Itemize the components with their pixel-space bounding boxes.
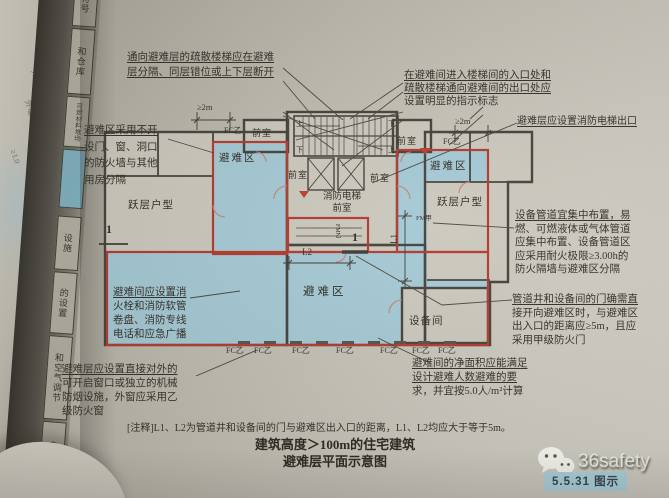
annotation-line: 卷盘、消防专线 — [113, 314, 187, 328]
annotation-smoke-control: 避难层应设置直接对外的 可开启窗口或独立的机械 防烟设施，外窗应采用乙 级防火窗 — [62, 363, 178, 419]
annotation-line: 用房分隔 — [84, 173, 158, 190]
window-marks — [238, 341, 456, 344]
label-refuge-area-center: 避难区 — [303, 283, 347, 299]
annotation-line: 采用甲级防火门 — [512, 334, 638, 348]
annotation-line: 电话和应急广播 — [113, 328, 187, 342]
annotation-line: 设门、窗、洞口 — [84, 140, 158, 157]
annotation-line: 级防火窗 — [62, 405, 178, 419]
annotation-line: 避难层应设置直接对外的 — [62, 363, 178, 377]
label-front-room: 前室 — [252, 126, 272, 139]
label-stair-down: 下 — [296, 145, 303, 155]
annotation-firewall: 避难区采用不开 设门、窗、洞口 的防火墙与其他 用房分隔 — [84, 123, 158, 189]
dim-2m-right: ≥2m — [455, 116, 471, 126]
figure-number-badge: 5.5.31 图示 — [544, 472, 627, 491]
label-fm-door-a: FM甲 — [416, 212, 432, 222]
annotation-line: 避难间应设置消 — [113, 286, 187, 300]
chapter-tab: 设施 — [54, 215, 82, 271]
section-mark-1: 1 — [352, 230, 358, 245]
annotation-hydrant: 避难间应设置消 火栓和消防软管 卷盘、消防专线 电话和应急广播 — [113, 286, 187, 342]
label-duplex-right: 跃层户型 — [437, 194, 483, 209]
label-fm-door-b: FM乙 — [333, 224, 342, 239]
annotation-line: 设备管道宜集中布置，易 — [515, 209, 631, 223]
book-photo: 并在 外墙位于 ≥1.0 符号 和仓库 可燃材料堆场 设施 的设置 和空气调节 … — [0, 0, 669, 498]
annotation-line: 避难间的净面积应能满足 — [412, 357, 528, 371]
annotation-net-area: 避难间的净面积应能满足 设计避难人数避难的要 求，并宜按5.0人/m²计算 — [412, 357, 528, 399]
annotation-line: 的防火墙与其他 — [84, 156, 158, 173]
label-fc-window: FC乙 — [292, 345, 310, 356]
brand-text: 36safety — [578, 451, 650, 473]
label-fire-elevator-lobby: 消防电梯 前室 — [312, 191, 372, 215]
annotation-line: 设计避难人数避难的要 — [412, 371, 528, 385]
annotation-signage: 在避难间进入楼梯间的入口处和 疏散楼梯通向避难间的出口处应 设置明显的指示标志 — [404, 69, 551, 108]
label-fc-window: FC乙 — [380, 345, 398, 356]
annotation-shaft-doors: 管道井和设备间的门确需直 接开向避难区时，与避难区 出入口的距离应≥5m，且应 … — [512, 293, 638, 347]
label-front-room: 前室 — [288, 168, 308, 181]
label-refuge-area-right: 避难区 — [430, 158, 468, 173]
chapter-tab: 的设置 — [49, 272, 77, 335]
annotation-line: 疏散楼梯通向避难间的出口处应 — [404, 82, 551, 95]
annotation-line: 接开向避难区时，与避难区 — [512, 307, 638, 321]
annotation-line: 可开启窗口或独立的机械 — [62, 377, 178, 391]
label-fc-window: FC乙 — [336, 345, 354, 356]
caption-line1: 建筑高度＞100m的住宅建筑 — [225, 436, 445, 453]
annotation-line: 应集中布置、设备管道区 — [515, 236, 631, 250]
annotation-line: 出入口的距离应≥5m，且应 — [512, 320, 638, 334]
label-fc-window: FC乙 — [443, 136, 461, 147]
annotation-line: 火栓和消防软管 — [113, 300, 187, 314]
dim-2m-left: ≥2m — [197, 102, 213, 112]
caption-line2: 避难层平面示意图 — [225, 453, 445, 470]
dim-label-l2: L2 — [302, 247, 312, 257]
figure-caption: 建筑高度＞100m的住宅建筑 避难层平面示意图 — [225, 436, 445, 470]
label-fc-window: FC乙 — [412, 345, 430, 356]
label-stair-up: 上 — [296, 119, 303, 129]
label-fire-elevator: 消防电梯 — [312, 191, 372, 203]
annotation-line: 防烟设施，外窗应采用乙 — [62, 391, 178, 405]
annotation-line: 层分隔、同层错位或上下层断开 — [127, 65, 274, 80]
label-fc-window: FC乙 — [226, 345, 244, 356]
annotation-line: 求，并宜按5.0人/m²计算 — [412, 385, 528, 399]
label-stair-down: 下 — [388, 119, 395, 129]
label-refuge-area-left: 避难区 — [219, 150, 257, 165]
annotation-line: 燃、可燃液体或气体管道 — [515, 223, 631, 237]
annotation-stair-separation: 通向避难层的疏散楼梯应在避难 层分隔、同层错位或上下层断开 — [127, 50, 274, 80]
annotation-line: 管道井和设备间的门确需直 — [512, 293, 638, 307]
annotation-line: 应采用耐火极限≥3.00h的 — [515, 250, 631, 264]
label-fc-window: FC乙 — [438, 345, 456, 356]
annotation-line: 设置明显的指示标志 — [404, 95, 551, 108]
label-duplex-left: 跃层户型 — [128, 197, 174, 212]
label-stair-up: 上 — [388, 145, 395, 155]
label-fc-window: FC乙 — [224, 125, 242, 136]
annotation-pipes: 设备管道宜集中布置，易 燃、可燃液体或气体管道 应集中布置、设备管道区 应采用耐… — [515, 209, 631, 277]
annotation-elevator-exit: 避难层应设置消防电梯出口 — [517, 112, 637, 127]
label-fc-window: FC乙 — [254, 345, 272, 356]
label-front-room: 前室 — [397, 134, 417, 147]
annotation-line: 通向避难层的疏散楼梯应在避难 — [127, 50, 274, 65]
section-mark-1: 1 — [106, 222, 112, 237]
annotation-line: 防火隔墙与避难区分隔 — [515, 263, 631, 277]
annotation-line: 避难区采用不开 — [84, 123, 158, 140]
annotation-line: 避难层应设置消防电梯出口 — [517, 112, 637, 127]
label-front-room: 前室 — [370, 171, 390, 184]
label-equipment-room: 设备间 — [409, 313, 444, 328]
dim-label-l1: L1 — [389, 234, 399, 244]
figure-note: [注释]L1、L2为管道井和设备间的门与避难区出入口的距离，L1、L2均应大于等… — [127, 419, 511, 434]
annotation-line: 在避难间进入楼梯间的入口处和 — [404, 69, 551, 82]
label-front-room: 前室 — [312, 203, 372, 215]
